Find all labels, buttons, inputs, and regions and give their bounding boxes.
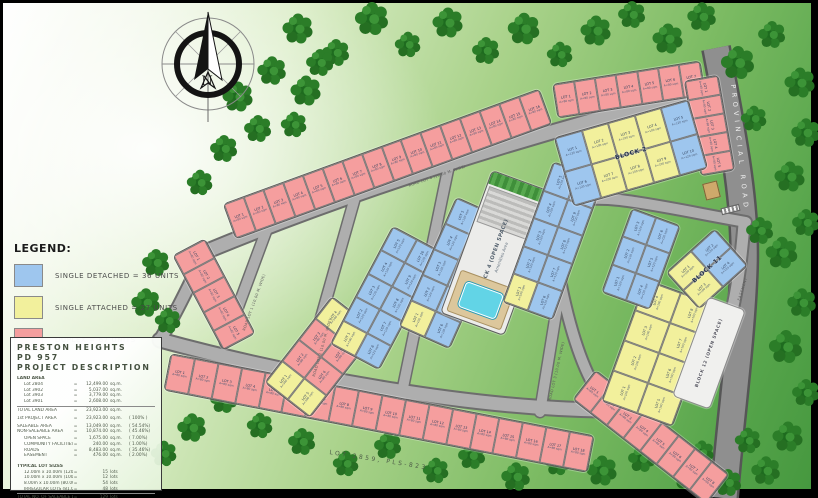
lot-area-label: A=80 sqm [383, 414, 398, 420]
lot-area-label: A=80 sqm [524, 442, 539, 448]
site-development-plan: LOT 1A=80 sqmLOT 2A=80 sqmLOT 3A=80 sqmL… [0, 0, 818, 498]
project-description-panel: PRESTON HEIGHTS PD 957 PROJECT DESCRIPTI… [10, 337, 162, 491]
table-row: IRREGULAR LOTS (81.00 - 167 sq.m.)=48lot… [17, 487, 155, 493]
legend: LEGEND: SINGLE DETACHED = 36 UNITSSINGLE… [14, 242, 179, 351]
row-percent: ( 100% ) [128, 416, 155, 422]
table-row: Lot 3901=2,608.00sq.m. [17, 399, 155, 405]
legend-item-single_attached: SINGLE ATTACHED = 27 UNITS [14, 296, 179, 319]
lot-area-label: A=80 sqm [336, 405, 351, 411]
legend-item-label: SINGLE DETACHED = 36 UNITS [55, 272, 179, 280]
row-label: EASEMENT [17, 453, 73, 459]
lot-area-label: A=80 sqm [242, 387, 257, 393]
lot-row: LOT 1A=80 sqmLOT 2A=80 sqmLOT 3A=80 sqmL… [165, 354, 594, 471]
lot-area-label: A=80 sqm [359, 410, 374, 416]
lot-area-label: A=80 sqm [622, 88, 637, 93]
lot-row: LOT 1A=80 sqmLOT 2A=80 sqmLOT 3A=80 sqmL… [174, 239, 255, 349]
row-label: TOTAL LAND AREA [17, 408, 73, 414]
row-unit: lots [108, 487, 128, 493]
row-unit: sq.m. [108, 408, 128, 414]
row-value: 23,923.00 [78, 416, 108, 422]
row-value: 2,608.00 [78, 399, 108, 405]
table-row: TOTAL LAND AREA=23,923.00sq.m. [17, 406, 155, 414]
table-spacer [17, 459, 155, 462]
legend-heading: LEGEND: [14, 242, 179, 255]
lot-area-label: A=80 sqm [453, 428, 468, 434]
lot-area-label: A=80 sqm [664, 82, 679, 87]
row-label: Lot 3901 [17, 399, 73, 405]
legend-swatch-single_detached [14, 264, 43, 287]
project-description-title: PROJECT DESCRIPTION [17, 363, 155, 373]
table-row: 1st PROJECT AREA=23,923.00sq.m.( 100% ) [17, 416, 155, 422]
project-description-table: LAND AREALot 2804=12,499.00sq.m.Lot 3902… [17, 376, 155, 498]
road-name-label: ROAD LOT 1 (10.00 M. WIDE) [242, 273, 266, 331]
road-name-label: ROAD LOT 3 (10.00 M. WIDE) [548, 341, 565, 401]
row-unit: sq.m. [108, 429, 128, 435]
row-unit: sq.m. [108, 453, 128, 459]
row-percent: ( 45.46%) [128, 429, 155, 435]
lot-area-label: A=80 sqm [711, 155, 717, 170]
lot-area-label: A=80 sqm [500, 437, 515, 443]
north-compass-icon: N [156, 8, 260, 126]
row-value: 10,874.00 [78, 429, 108, 435]
strip-left-duplex-row: LOT 1A=80 sqmLOT 2A=80 sqmLOT 3A=80 sqmL… [172, 238, 255, 351]
lot-area-label: A=80 sqm [195, 378, 210, 384]
swimming-pool [457, 281, 504, 320]
strip-bottom-duplex-row: LOT 1A=80 sqmLOT 2A=80 sqmLOT 3A=80 sqmL… [163, 353, 594, 473]
lot: LOT 18A=80 sqm [563, 432, 593, 472]
legend-item-single_detached: SINGLE DETACHED = 36 UNITS [14, 264, 179, 287]
table-row: TOTAL NO. OF SALEABLE LOTS=129lots [17, 493, 155, 498]
lot-area-label: A=80 sqm [704, 118, 710, 133]
lot-area-label: A=80 sqm [172, 373, 187, 379]
lot-area-label: A=80 sqm [430, 423, 445, 429]
row-percent: ( 2.00%) [128, 453, 155, 459]
row-unit: sq.m. [108, 416, 128, 422]
lot-area-label: A=80 sqm [219, 382, 234, 388]
project-name: PRESTON HEIGHTS [17, 343, 155, 353]
table-row: NON-SALEABLE AREA=10,874.00sq.m.( 45.46%… [17, 429, 155, 435]
row-value: 48 [78, 487, 108, 493]
row-label: 1st PROJECT AREA [17, 416, 73, 422]
row-unit: sq.m. [108, 399, 128, 405]
lot-area-label: A=80 sqm [477, 432, 492, 438]
lot-area-label: A=80 sqm [571, 451, 586, 457]
lot-area-label: A=80 sqm [580, 95, 595, 100]
lot-area-label: A=80 sqm [601, 91, 616, 96]
lot-area-label: A=80 sqm [708, 137, 714, 152]
project-code: PD 957 [17, 353, 155, 363]
row-value: 476.00 [78, 453, 108, 459]
legend-swatch-single_attached [14, 296, 43, 319]
lot-area-label: A=80 sqm [559, 98, 574, 103]
row-value: 23,923.00 [78, 408, 108, 414]
lot-area-label: A=80 sqm [406, 419, 421, 425]
lot-area-label: A=80 sqm [698, 80, 704, 95]
row-label: IRREGULAR LOTS (81.00 - 167 sq.m.) [17, 487, 73, 493]
legend-item-label: SINGLE ATTACHED = 27 UNITS [55, 304, 178, 312]
lot-area-label: A=80 sqm [643, 85, 658, 90]
table-row: EASEMENT=476.00sq.m.( 2.00%) [17, 453, 155, 459]
row-label: NON-SALEABLE AREA [17, 429, 73, 435]
lot-area-label: A=80 sqm [547, 446, 562, 452]
north-letter: N [201, 74, 212, 89]
lot-area-label: A=80 sqm [701, 99, 707, 114]
